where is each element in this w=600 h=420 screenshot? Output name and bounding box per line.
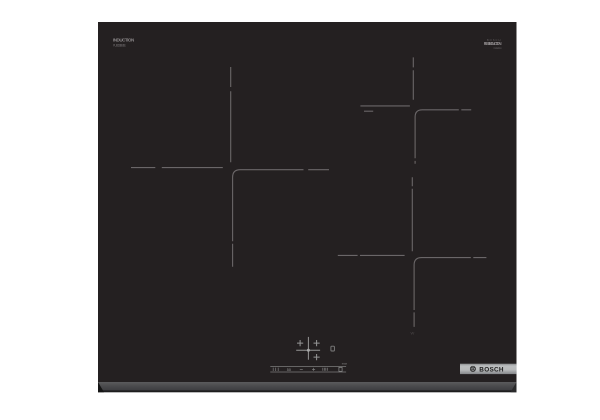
svg-text:W: W xyxy=(411,331,415,336)
svg-text:INDUCTION: INDUCTION xyxy=(113,38,135,43)
svg-text:max: max xyxy=(342,361,348,365)
svg-text:FLEXINDUCTION: FLEXINDUCTION xyxy=(484,41,502,46)
svg-text:BOSCH: BOSCH xyxy=(479,367,504,374)
svg-text:induction: induction xyxy=(494,46,503,50)
svg-text:PUE631BB1E: PUE631BB1E xyxy=(113,44,126,48)
svg-text:50: 50 xyxy=(287,368,291,372)
